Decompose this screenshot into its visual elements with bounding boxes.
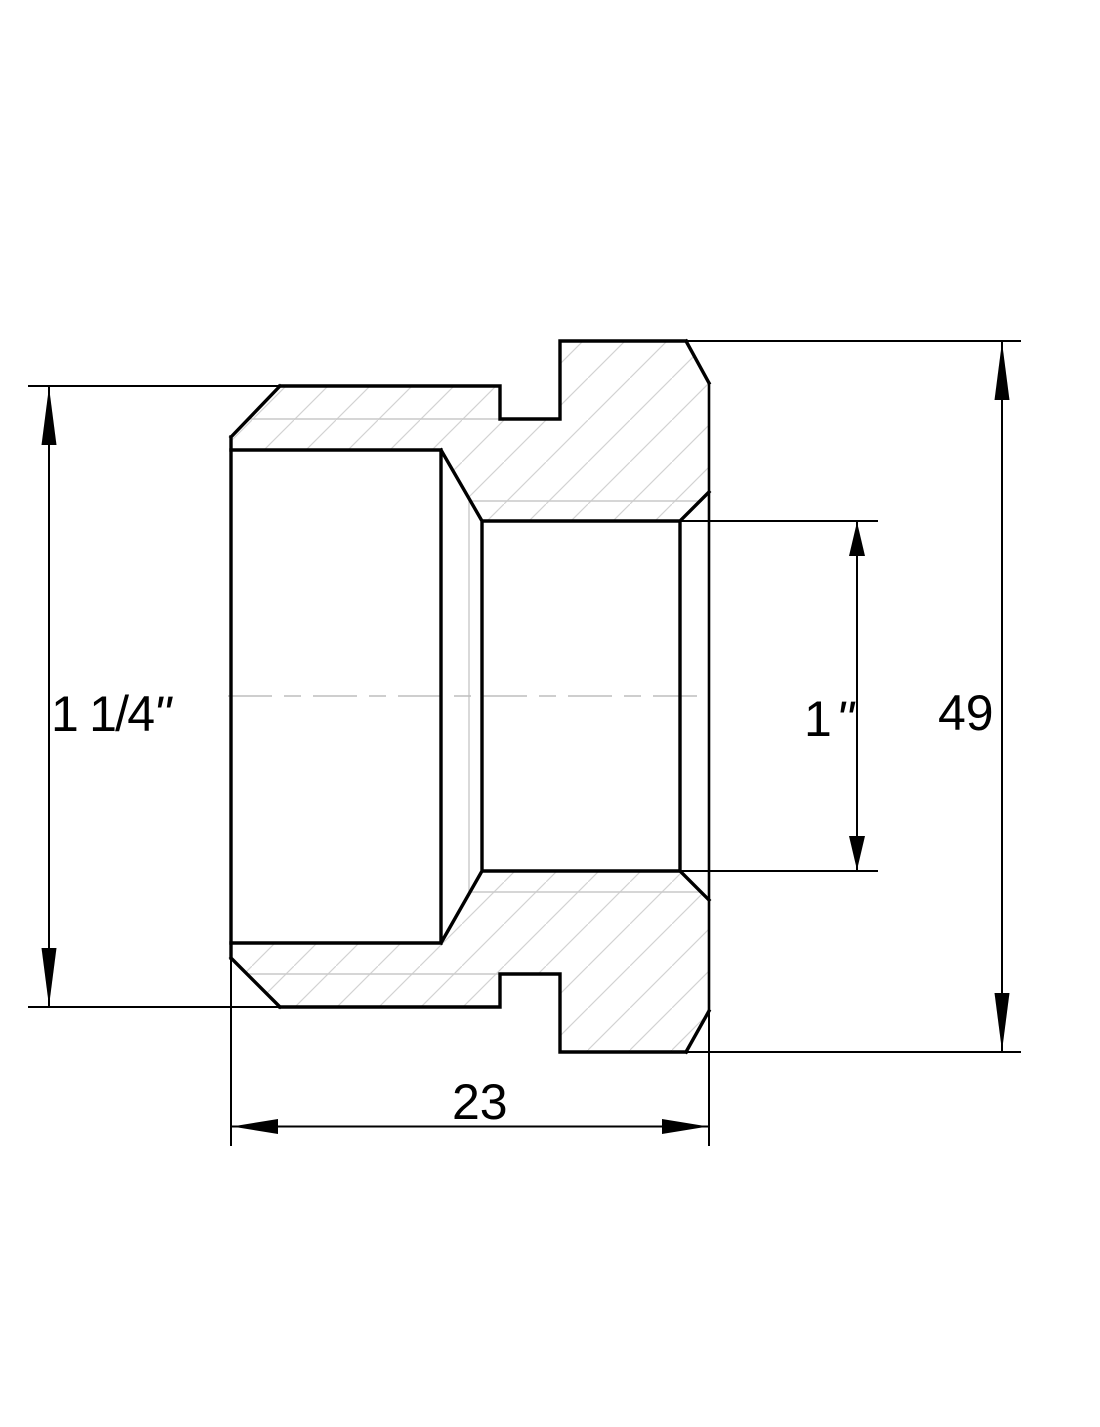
svg-text:23: 23 <box>452 1074 508 1130</box>
svg-text:1 1/4": 1 1/4" <box>51 686 173 742</box>
svg-text:1": 1" <box>804 691 858 747</box>
svg-text:49: 49 <box>938 685 994 741</box>
